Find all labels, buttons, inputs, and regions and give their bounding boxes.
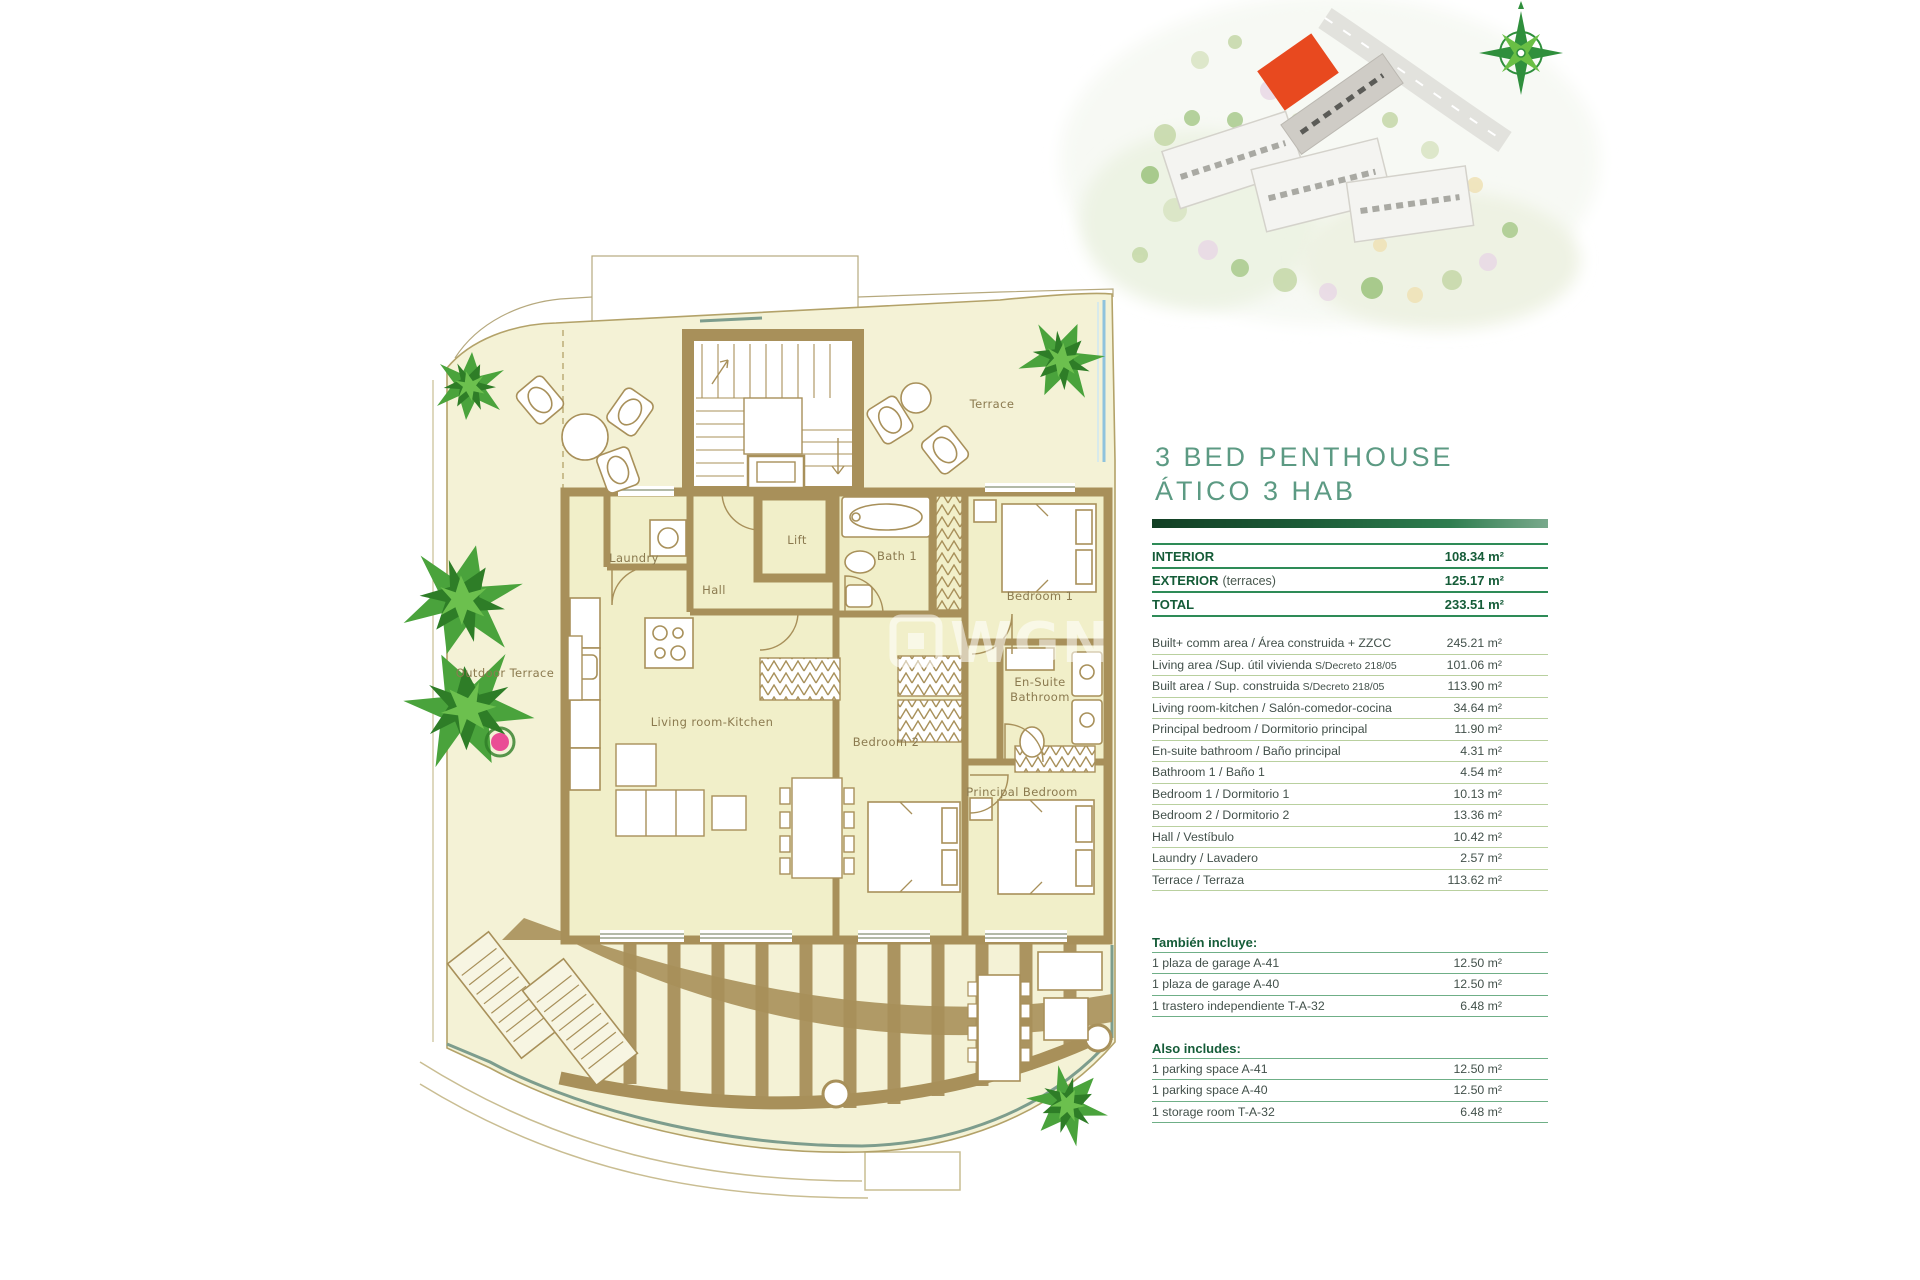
table-row: Bathroom 1 / Baño 14.54 m² (1152, 762, 1548, 784)
stairwell (688, 335, 858, 492)
label-bedroom1: Bedroom 1 (1007, 589, 1074, 603)
table-row: Hall / Vestíbulo10.42 m² (1152, 827, 1548, 849)
label-hall: Hall (702, 583, 726, 597)
title-line-es: ÁTICO 3 HAB (1155, 474, 1454, 508)
svg-text:WGN: WGN (950, 611, 1111, 676)
section-heading: Also includes: (1152, 1038, 1548, 1058)
table-row: 1 parking space A-4112.50 m² (1152, 1058, 1548, 1079)
floor-plan: Terrace Outdoor Terrace Laundry Hall Lif… (388, 256, 1120, 1198)
table-row: Built+ comm area / Área construida + ZZC… (1152, 633, 1548, 655)
gradient-divider (1152, 519, 1548, 528)
page-title: 3 BED PENTHOUSE ÁTICO 3 HAB (1155, 440, 1454, 508)
bed-bedroom2 (868, 802, 960, 892)
includes-es-table: También incluye: 1 plaza de garage A-411… (1152, 932, 1548, 1017)
label-living: Living room-Kitchen (651, 715, 774, 729)
brochure-page: Terrace Outdoor Terrace Laundry Hall Lif… (0, 0, 1920, 1280)
label-laundry: Laundry (609, 551, 659, 565)
label-lift: Lift (787, 533, 807, 547)
label-terrace: Terrace (969, 397, 1015, 411)
label-bedroom2: Bedroom 2 (853, 735, 920, 749)
table-row: INTERIOR 108.34 m² (1152, 543, 1548, 567)
label-outdoor-terrace: Outdoor Terrace (456, 666, 554, 680)
label-ensuite-1: En-Suite (1014, 675, 1065, 689)
table-row: Built area / Sup. construidaS/Decreto 21… (1152, 676, 1548, 698)
table-row: Principal bedroom / Dormitorio principal… (1152, 719, 1548, 741)
table-row: Terrace / Terraza113.62 m² (1152, 870, 1548, 892)
details-table: Built+ comm area / Área construida + ZZC… (1152, 633, 1548, 891)
site-plan (1060, 0, 1600, 330)
table-row: Living area /Sup. útil viviendaS/Decreto… (1152, 655, 1548, 677)
table-row: En-suite bathroom / Baño principal4.31 m… (1152, 741, 1548, 763)
table-row: 1 storage room T-A-326.48 m² (1152, 1101, 1548, 1123)
table-row: EXTERIOR(terraces) 125.17 m² (1152, 567, 1548, 591)
label-principal: Principal Bedroom (966, 785, 1077, 799)
table-row: Laundry / Lavadero2.57 m² (1152, 848, 1548, 870)
section-heading: También incluye: (1152, 932, 1548, 952)
table-row: 1 plaza de garage A-4012.50 m² (1152, 973, 1548, 994)
title-line-en: 3 BED PENTHOUSE (1155, 440, 1454, 474)
label-bath1: Bath 1 (877, 549, 917, 563)
label-ensuite-2: Bathroom (1010, 690, 1070, 704)
floorplan-canvas: Terrace Outdoor Terrace Laundry Hall Lif… (0, 0, 1920, 1280)
table-row: 1 parking space A-4012.50 m² (1152, 1079, 1548, 1100)
table-row: Bedroom 1 / Dormitorio 110.13 m² (1152, 784, 1548, 806)
table-row: TOTAL 233.51 m² (1152, 591, 1548, 617)
table-row: Living room-kitchen / Salón-comedor-coci… (1152, 698, 1548, 720)
summary-table: INTERIOR 108.34 m² EXTERIOR(terraces) 12… (1152, 543, 1548, 617)
table-row: 1 plaza de garage A-4112.50 m² (1152, 952, 1548, 973)
table-row: Bedroom 2 / Dormitorio 213.36 m² (1152, 805, 1548, 827)
includes-en-table: Also includes: 1 parking space A-4112.50… (1152, 1038, 1548, 1123)
table-row: 1 trastero independiente T-A-326.48 m² (1152, 995, 1548, 1017)
